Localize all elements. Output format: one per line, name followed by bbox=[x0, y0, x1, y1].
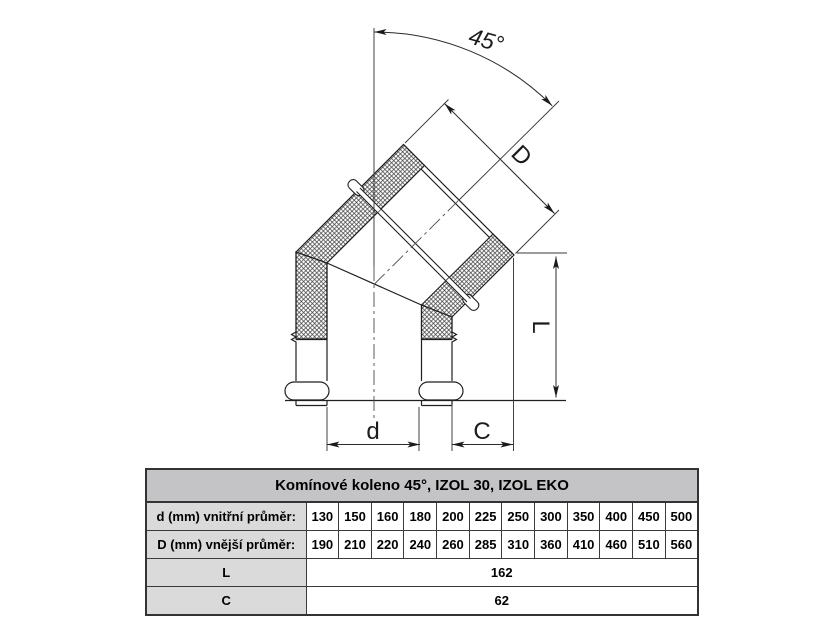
inner-diameter-value-cell: 225 bbox=[469, 502, 502, 531]
bottom-bead-right bbox=[419, 382, 463, 400]
row-label-outer-diameter: D (mm) vnější průměr: bbox=[146, 531, 306, 559]
offset-value-cell: 62 bbox=[306, 587, 698, 616]
dimension-angle-arc bbox=[374, 32, 552, 106]
offset-label: C bbox=[473, 418, 490, 445]
outer-diameter-value-cell: 220 bbox=[371, 531, 404, 559]
length-value-cell: 162 bbox=[306, 559, 698, 587]
inner-diameter-value-cell: 300 bbox=[535, 502, 568, 531]
outer-diameter-value-cell: 190 bbox=[306, 531, 339, 559]
table-row-offset: C 62 bbox=[146, 587, 698, 616]
table-title-row: Komínové koleno 45°, IZOL 30, IZOL EKO bbox=[146, 469, 698, 502]
inner-diameter-value-cell: 250 bbox=[502, 502, 535, 531]
inner-diameter-value-cell: 200 bbox=[437, 502, 470, 531]
table-row-outer-diameter: D (mm) vnější průměr: 190210220240260285… bbox=[146, 531, 698, 559]
outer-diameter-value-cell: 210 bbox=[339, 531, 372, 559]
bottom-bead-left bbox=[285, 382, 329, 400]
pipe-part bbox=[285, 145, 566, 406]
outer-diameter-value-cell: 560 bbox=[665, 531, 698, 559]
inner-diameter-value-cell: 500 bbox=[665, 502, 698, 531]
inner-diameter-value-cell: 400 bbox=[600, 502, 633, 531]
row-label-inner-diameter: d (mm) vnitřní průměr: bbox=[146, 502, 306, 531]
inner-diameter-value-cell: 160 bbox=[371, 502, 404, 531]
table-row-inner-diameter: d (mm) vnitřní průměr: 13015016018020022… bbox=[146, 502, 698, 531]
outer-diameter-value-cell: 410 bbox=[567, 531, 600, 559]
centerline-diagonal bbox=[374, 200, 459, 285]
outer-diameter-value-cell: 310 bbox=[502, 531, 535, 559]
outer-diameter-value-cell: 510 bbox=[633, 531, 666, 559]
row-label-offset: C bbox=[146, 587, 306, 616]
inner-diameter-value-cell: 150 bbox=[339, 502, 372, 531]
wall-vertical-left bbox=[296, 252, 327, 339]
table-row-length: L 162 bbox=[146, 559, 698, 587]
outer-diameter-value-cell: 260 bbox=[437, 531, 470, 559]
inner-diameter-value-cell: 180 bbox=[404, 502, 437, 531]
catalog-page: 45° D L d C Komínové koleno 45°, IZOL 30… bbox=[0, 0, 837, 628]
outer-diameter-value-cell: 285 bbox=[469, 531, 502, 559]
inner-diameter-value-cell: 350 bbox=[567, 502, 600, 531]
outer-diameter-value-cell: 240 bbox=[404, 531, 437, 559]
inner-diameter-label: d bbox=[366, 418, 379, 445]
elbow-technical-drawing: 45° D L d C bbox=[0, 0, 837, 462]
outer-diameter-value-cell: 360 bbox=[535, 531, 568, 559]
inner-diameter-value-cell: 450 bbox=[633, 502, 666, 531]
outer-diameter-value-cell: 460 bbox=[600, 531, 633, 559]
wall-diagonal-upper-left bbox=[296, 145, 425, 264]
table-title: Komínové koleno 45°, IZOL 30, IZOL EKO bbox=[146, 469, 698, 502]
length-label: L bbox=[527, 320, 554, 333]
outer-diameter-label: D bbox=[506, 140, 537, 171]
part-outline bbox=[285, 145, 566, 406]
spec-table: Komínové koleno 45°, IZOL 30, IZOL EKO d… bbox=[145, 468, 699, 616]
inner-diameter-value-cell: 130 bbox=[306, 502, 339, 531]
dimension-D-line bbox=[445, 104, 555, 214]
row-label-length: L bbox=[146, 559, 306, 587]
